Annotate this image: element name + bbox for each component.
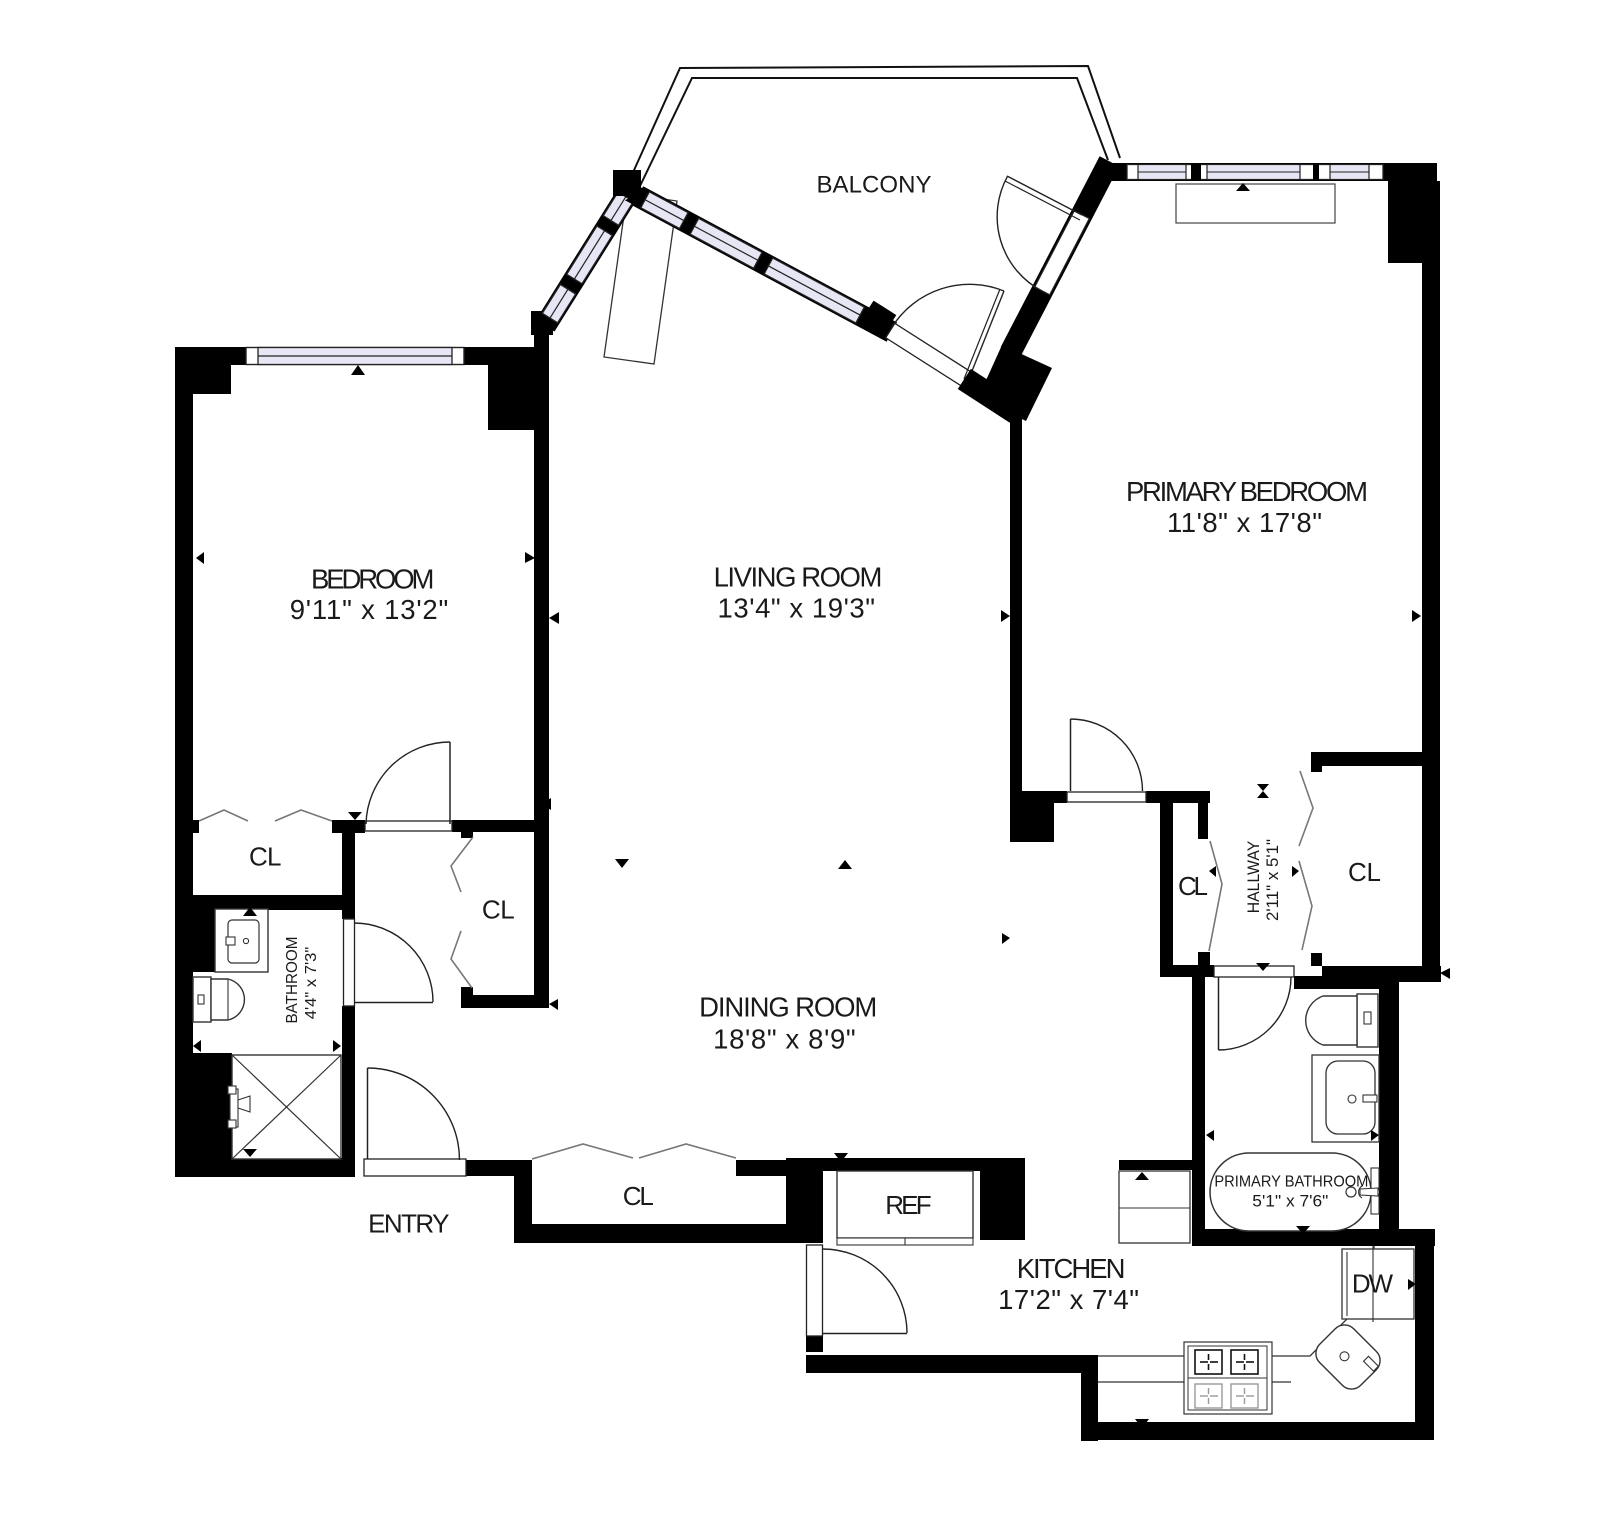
svg-text:KITCHEN: KITCHEN (1017, 1253, 1126, 1284)
svg-text:PRIMARY BEDROOM: PRIMARY BEDROOM (1126, 476, 1368, 507)
svg-text:CL: CL (623, 1181, 654, 1211)
svg-text:REF: REF (885, 1190, 931, 1220)
svg-text:BALCONY: BALCONY (817, 172, 932, 199)
svg-text:BATHROOM: BATHROOM (284, 937, 301, 1024)
svg-text:DW: DW (1352, 1269, 1394, 1299)
svg-text:11'8" x 17'8": 11'8" x 17'8" (1167, 507, 1322, 538)
svg-text:CL: CL (1348, 857, 1381, 887)
svg-text:ENTRY: ENTRY (368, 1209, 449, 1239)
svg-text:4'4" x 7'3": 4'4" x 7'3" (303, 947, 320, 1020)
svg-text:CL: CL (249, 842, 282, 872)
svg-text:CL: CL (1178, 871, 1208, 901)
svg-text:PRIMARY BATHROOM: PRIMARY BATHROOM (1214, 1174, 1368, 1191)
svg-text:9'11" x 13'2": 9'11" x 13'2" (290, 594, 449, 625)
svg-text:13'4" x 19'3": 13'4" x 19'3" (718, 593, 876, 624)
svg-text:BEDROOM: BEDROOM (311, 563, 434, 594)
svg-text:CL: CL (482, 895, 515, 925)
svg-text:LIVING ROOM: LIVING ROOM (714, 561, 883, 592)
svg-text:5'1" x 7'6": 5'1" x 7'6" (1252, 1191, 1328, 1210)
svg-text:18'8" x 8'9": 18'8" x 8'9" (713, 1023, 856, 1054)
svg-text:17'2" x 7'4": 17'2" x 7'4" (998, 1284, 1139, 1315)
svg-text:DINING ROOM: DINING ROOM (699, 992, 877, 1023)
svg-text:2'11" x 5'1": 2'11" x 5'1" (1263, 839, 1282, 921)
svg-text:HALLWAY: HALLWAY (1245, 841, 1263, 914)
